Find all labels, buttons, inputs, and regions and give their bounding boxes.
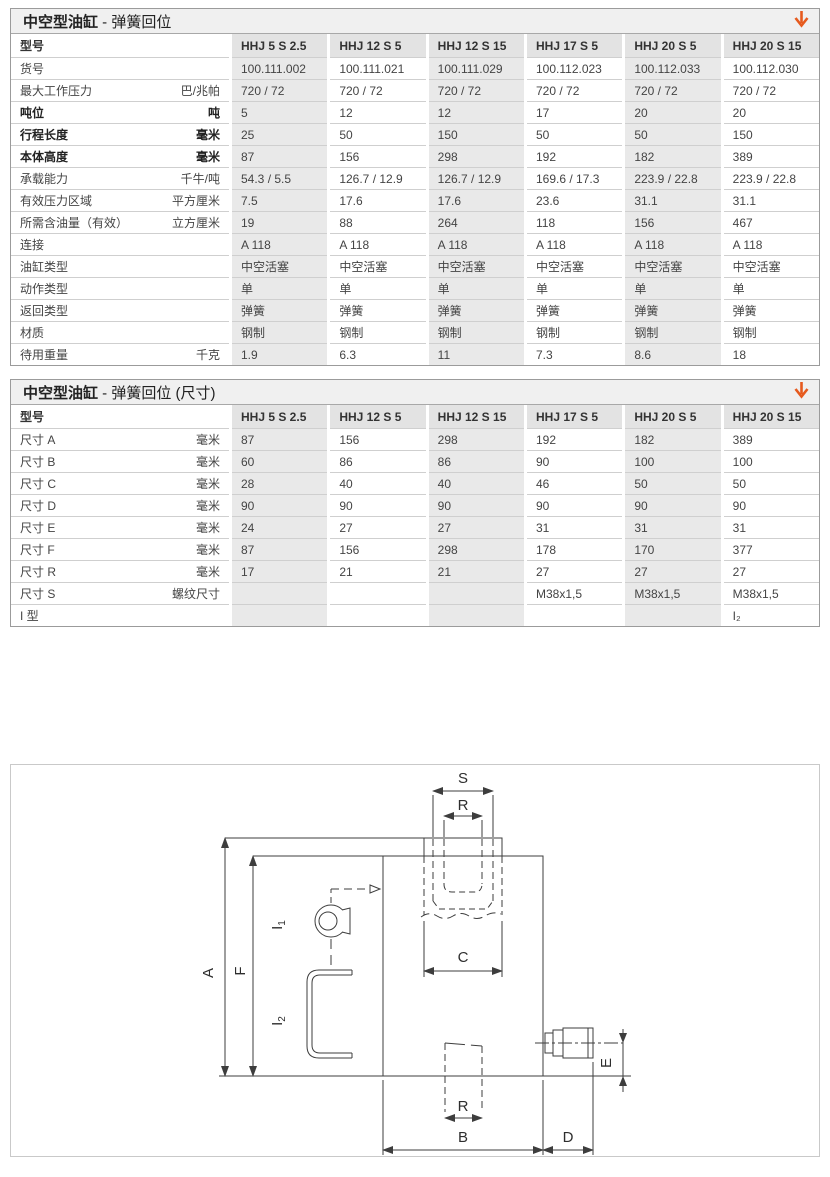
spec-cell: 50 (724, 472, 819, 494)
row-label: 尺寸 E (20, 519, 55, 536)
spec-cell: 7.3 (527, 343, 622, 365)
spec-cell (527, 604, 622, 626)
table2-title-bold: 中空型油缸 (23, 385, 98, 402)
row-label-cell: 行程长度毫米 (11, 123, 229, 145)
catalog-page: 中空型油缸 - 弹簧回位 型号HHJ 5 S 2.5HHJ 12 S 5HHJ … (0, 0, 830, 1177)
dim-label-r-bottom: R (458, 1098, 469, 1115)
spec-cell (330, 582, 425, 604)
row-label: 货号 (20, 60, 44, 77)
table-row: 承载能力千牛/吨54.3 / 5.5126.7 / 12.9126.7 / 12… (11, 167, 819, 189)
row-label-cell: 连接 (11, 233, 229, 255)
table1-header-row: 型号HHJ 5 S 2.5HHJ 12 S 5HHJ 12 S 15HHJ 17… (11, 34, 819, 57)
spec-cell: 90 (724, 494, 819, 516)
row-label: 尺寸 A (20, 431, 55, 448)
column-header: HHJ 12 S 15 (429, 405, 524, 428)
spec-cell: 弹簧 (330, 299, 425, 321)
spec-cell: 27 (527, 560, 622, 582)
download-arrow-icon[interactable] (794, 10, 809, 33)
spec-cell: 中空活塞 (724, 255, 819, 277)
spec-cell (429, 582, 524, 604)
spec-cell: A 118 (429, 233, 524, 255)
row-label-cell: 返回类型 (11, 299, 229, 321)
row-label-cell: 尺寸 D毫米 (11, 494, 229, 516)
row-unit: 毫米 (196, 497, 220, 514)
table1-title-bold: 中空型油缸 (23, 14, 98, 31)
spec-cell: 46 (527, 472, 622, 494)
table-row: 有效压力区域平方厘米7.517.617.623.631.131.1 (11, 189, 819, 211)
spec-cell (330, 604, 425, 626)
column-header: HHJ 12 S 15 (429, 34, 524, 57)
row-label-cell: 最大工作压力巴/兆帕 (11, 79, 229, 101)
table2-title: 中空型油缸 - 弹簧回位 (尺寸) (23, 382, 216, 403)
table-row: 吨位吨51212172020 (11, 101, 819, 123)
spec-cell: 182 (625, 428, 720, 450)
spec-cell: 156 (330, 428, 425, 450)
spec-cell: 31 (625, 516, 720, 538)
spec-cell: 27 (625, 560, 720, 582)
row-label-cell: I 型 (11, 604, 229, 626)
row-label-cell: 承载能力千牛/吨 (11, 167, 229, 189)
row-label-cell: 吨位吨 (11, 101, 229, 123)
spec-cell: 156 (330, 538, 425, 560)
row-unit: 毫米 (196, 148, 220, 165)
table-row: 尺寸 C毫米284040465050 (11, 472, 819, 494)
table-row: 本体高度毫米87156298192182389 (11, 145, 819, 167)
spec-cell: 20 (724, 101, 819, 123)
row-label: I 型 (20, 607, 39, 624)
spec-cell: 40 (429, 472, 524, 494)
spec-cell: 720 / 72 (429, 79, 524, 101)
spec-cell (232, 582, 327, 604)
spec-cell: 钢制 (232, 321, 327, 343)
spec-cell: 弹簧 (429, 299, 524, 321)
table1-body: 货号100.111.002100.111.021100.111.029100.1… (11, 57, 819, 365)
row-label-cell: 尺寸 F毫米 (11, 538, 229, 560)
spec-cell: 87 (232, 145, 327, 167)
row-label: 连接 (20, 236, 44, 253)
spec-cell: 90 (330, 494, 425, 516)
spec-cell: 90 (527, 494, 622, 516)
spec-cell: 25 (232, 123, 327, 145)
handle-icon (307, 970, 352, 1058)
table2-title-bar: 中空型油缸 - 弹簧回位 (尺寸) (11, 380, 819, 405)
spec-cell: 单 (330, 277, 425, 299)
spec-cell: A 118 (527, 233, 622, 255)
spec-cell: 223.9 / 22.8 (625, 167, 720, 189)
spec-cell: 31.1 (625, 189, 720, 211)
spec-cell: I₂ (724, 604, 819, 626)
spec-cell: 126.7 / 12.9 (330, 167, 425, 189)
table-row: 所需含油量（有效）立方厘米1988264118156467 (11, 211, 819, 233)
row-unit: 巴/兆帕 (181, 82, 220, 99)
spec-cell: 21 (330, 560, 425, 582)
table-row: 尺寸 B毫米60868690100100 (11, 450, 819, 472)
spec-cell: 中空活塞 (232, 255, 327, 277)
table2-title-rest: - 弹簧回位 (尺寸) (98, 385, 216, 402)
table2-header-row: 型号HHJ 5 S 2.5HHJ 12 S 5HHJ 12 S 15HHJ 17… (11, 405, 819, 428)
spec-cell: 18 (724, 343, 819, 365)
spec-cell (429, 604, 524, 626)
spec-cell: 17 (527, 101, 622, 123)
spec-cell: 178 (527, 538, 622, 560)
spec-cell: 377 (724, 538, 819, 560)
spec-cell: 720 / 72 (724, 79, 819, 101)
spec-cell: 182 (625, 145, 720, 167)
spec-cell: 100.111.021 (330, 57, 425, 79)
spec-cell: 31 (724, 516, 819, 538)
row-label: 材质 (20, 324, 44, 341)
table-row: 最大工作压力巴/兆帕720 / 72720 / 72720 / 72720 / … (11, 79, 819, 101)
row-label: 尺寸 S (20, 585, 55, 602)
spec-cell: 100.111.029 (429, 57, 524, 79)
row-label-cell: 有效压力区域平方厘米 (11, 189, 229, 211)
spec-cell: 单 (527, 277, 622, 299)
spec-cell: 467 (724, 211, 819, 233)
table-row: 待用重量千克1.96.3117.38.618 (11, 343, 819, 365)
dim-label-r-top: R (458, 797, 469, 814)
spec-cell: A 118 (724, 233, 819, 255)
spec-cell: 12 (330, 101, 425, 123)
column-header: HHJ 5 S 2.5 (232, 405, 327, 428)
row-label-cell: 货号 (11, 57, 229, 79)
spec-cell: 223.9 / 22.8 (724, 167, 819, 189)
row-unit: 平方厘米 (172, 192, 220, 209)
dim-label-f: F (232, 966, 249, 975)
row-label-cell: 尺寸 A毫米 (11, 428, 229, 450)
spec-cell: M38x1,5 (625, 582, 720, 604)
row-unit: 毫米 (196, 431, 220, 448)
spec-cell: 钢制 (625, 321, 720, 343)
row-unit: 毫米 (196, 563, 220, 580)
spec-cell: 389 (724, 428, 819, 450)
table-row: 油缸类型中空活塞中空活塞中空活塞中空活塞中空活塞中空活塞 (11, 255, 819, 277)
column-header: HHJ 20 S 5 (625, 34, 720, 57)
spec-cell: 弹簧 (625, 299, 720, 321)
spec-cell: 192 (527, 428, 622, 450)
spec-cell: 156 (625, 211, 720, 233)
table1-title-bar: 中空型油缸 - 弹簧回位 (11, 9, 819, 34)
row-label: 待用重量 (20, 346, 68, 363)
spec-cell: 87 (232, 428, 327, 450)
spec-cell: 27 (429, 516, 524, 538)
table2-body: 尺寸 A毫米87156298192182389尺寸 B毫米60868690100… (11, 428, 819, 626)
dim-label-s: S (458, 770, 468, 787)
column-header: HHJ 17 S 5 (527, 405, 622, 428)
table1-title-rest: - 弹簧回位 (98, 14, 171, 31)
spec-cell: 单 (724, 277, 819, 299)
row-label: 返回类型 (20, 302, 68, 319)
row-unit: 毫米 (196, 475, 220, 492)
row-unit: 毫米 (196, 453, 220, 470)
row-unit: 千牛/吨 (181, 170, 220, 187)
table-row: I 型I₂ (11, 604, 819, 626)
spec-cell: 28 (232, 472, 327, 494)
spec-cell (625, 604, 720, 626)
dim-label-e: E (598, 1058, 615, 1068)
row-label: 油缸类型 (20, 258, 68, 275)
spec-cell: 中空活塞 (625, 255, 720, 277)
row-label: 最大工作压力 (20, 82, 92, 99)
spec-cell: 8.6 (625, 343, 720, 365)
spec-cell: 90 (527, 450, 622, 472)
spec-cell: 90 (232, 494, 327, 516)
spec-cell: 100.111.002 (232, 57, 327, 79)
cylinder-body (383, 856, 543, 1076)
spec-cell: 192 (527, 145, 622, 167)
row-label: 尺寸 C (20, 475, 56, 492)
spec-cell: 169.6 / 17.3 (527, 167, 622, 189)
spec-cell: 中空活塞 (429, 255, 524, 277)
spec-cell: 19 (232, 211, 327, 233)
spec-cell: 90 (429, 494, 524, 516)
table-row: 尺寸 R毫米172121272727 (11, 560, 819, 582)
table-row: 尺寸 E毫米242727313131 (11, 516, 819, 538)
row-unit: 螺纹尺寸 (172, 585, 220, 602)
spec-cell: 720 / 72 (232, 79, 327, 101)
spec-cell: 31 (527, 516, 622, 538)
spec-cell: 5 (232, 101, 327, 123)
row-label: 吨位 (20, 104, 44, 121)
download-arrow-icon[interactable] (794, 381, 809, 404)
table-row: 尺寸 A毫米87156298192182389 (11, 428, 819, 450)
row-label: 行程长度 (20, 126, 68, 143)
spec-cell: 100.112.030 (724, 57, 819, 79)
column-header: HHJ 20 S 5 (625, 405, 720, 428)
table-row: 尺寸 S螺纹尺寸M38x1,5M38x1,5M38x1,5 (11, 582, 819, 604)
dim-label-b: B (458, 1129, 468, 1146)
row-label: 尺寸 R (20, 563, 56, 580)
spec-cell: 12 (429, 101, 524, 123)
row-label-cell: 尺寸 B毫米 (11, 450, 229, 472)
spec-cell: A 118 (625, 233, 720, 255)
row-label-cell: 尺寸 E毫米 (11, 516, 229, 538)
section-gap (10, 366, 820, 379)
spec-cell: 中空活塞 (527, 255, 622, 277)
row-unit: 毫米 (196, 126, 220, 143)
spec-table-section: 中空型油缸 - 弹簧回位 型号HHJ 5 S 2.5HHJ 12 S 5HHJ … (10, 8, 820, 366)
spec-cell: 50 (625, 472, 720, 494)
spec-cell: A 118 (330, 233, 425, 255)
spec-cell: 中空活塞 (330, 255, 425, 277)
spec-cell: 90 (625, 494, 720, 516)
row-label: 动作类型 (20, 280, 68, 297)
spec-cell: 50 (330, 123, 425, 145)
row-label: 有效压力区域 (20, 192, 92, 209)
row-label: 尺寸 D (20, 497, 56, 514)
spec-cell: 40 (330, 472, 425, 494)
spec-cell: 钢制 (527, 321, 622, 343)
table-row: 返回类型弹簧弹簧弹簧弹簧弹簧弹簧 (11, 299, 819, 321)
spec-cell: 6.3 (330, 343, 425, 365)
dim-label-i1: I1 (269, 920, 288, 930)
spec-cell: 60 (232, 450, 327, 472)
column-header: HHJ 12 S 5 (330, 405, 425, 428)
column-header: HHJ 20 S 15 (724, 34, 819, 57)
column-header: HHJ 5 S 2.5 (232, 34, 327, 57)
spec-cell: 100 (724, 450, 819, 472)
row-label: 所需含油量（有效） (20, 214, 128, 231)
dimension-diagram: S R C R B D A F E I1 I2 (10, 764, 820, 1157)
row-unit: 千克 (196, 346, 220, 363)
dim-label-d: D (563, 1129, 574, 1146)
dim-label-a: A (200, 968, 217, 978)
spec-cell: 24 (232, 516, 327, 538)
spec-cell: 21 (429, 560, 524, 582)
row-label-cell: 材质 (11, 321, 229, 343)
row-label-cell: 动作类型 (11, 277, 229, 299)
spec-cell: 150 (429, 123, 524, 145)
spec-cell: 86 (429, 450, 524, 472)
spec-cell: 20 (625, 101, 720, 123)
spec-cell: 87 (232, 538, 327, 560)
table-row: 尺寸 D毫米909090909090 (11, 494, 819, 516)
table-row: 尺寸 F毫米87156298178170377 (11, 538, 819, 560)
spec-cell: M38x1,5 (527, 582, 622, 604)
row-unit: 吨 (208, 104, 220, 121)
spec-cell: 17.6 (330, 189, 425, 211)
spec-cell: 钢制 (330, 321, 425, 343)
spec-cell: 118 (527, 211, 622, 233)
spec-cell: 298 (429, 428, 524, 450)
row-label-cell: 待用重量千克 (11, 343, 229, 365)
spec-cell: 86 (330, 450, 425, 472)
dim-label-i2: I2 (269, 1016, 288, 1026)
spec-cell: 126.7 / 12.9 (429, 167, 524, 189)
row-label: 本体高度 (20, 148, 68, 165)
spec-cell: 钢制 (724, 321, 819, 343)
spec-cell: 31.1 (724, 189, 819, 211)
row-unit: 立方厘米 (172, 214, 220, 231)
row-label-cell: 本体高度毫米 (11, 145, 229, 167)
spec-cell: 720 / 72 (330, 79, 425, 101)
spec-cell: M38x1,5 (724, 582, 819, 604)
spec-cell: 170 (625, 538, 720, 560)
spec-cell: 27 (330, 516, 425, 538)
spec-cell: 50 (527, 123, 622, 145)
spec-cell: 88 (330, 211, 425, 233)
spec-cell (232, 604, 327, 626)
spec-cell: 单 (625, 277, 720, 299)
spec-cell: 27 (724, 560, 819, 582)
table1-title: 中空型油缸 - 弹簧回位 (23, 11, 171, 32)
row-label: 尺寸 F (20, 541, 55, 558)
dimension-table-section: 中空型油缸 - 弹簧回位 (尺寸) 型号HHJ 5 S 2.5HHJ 12 S … (10, 379, 820, 627)
coupler-icon (535, 1028, 623, 1058)
table-row: 连接A 118A 118A 118A 118A 118A 118 (11, 233, 819, 255)
spec-cell: A 118 (232, 233, 327, 255)
column-header: HHJ 12 S 5 (330, 34, 425, 57)
spec-cell: 弹簧 (527, 299, 622, 321)
column-header-model: 型号 (11, 405, 229, 428)
row-label: 承载能力 (20, 170, 68, 187)
spec-cell: 720 / 72 (625, 79, 720, 101)
spec-cell: 17 (232, 560, 327, 582)
spec-cell: 单 (429, 277, 524, 299)
spec-cell: 150 (724, 123, 819, 145)
spec-cell: 23.6 (527, 189, 622, 211)
spec-cell: 100 (625, 450, 720, 472)
spec-cell: 100.112.033 (625, 57, 720, 79)
spec-cell: 11 (429, 343, 524, 365)
spec-cell: 钢制 (429, 321, 524, 343)
spec-cell: 50 (625, 123, 720, 145)
spec-cell: 100.112.023 (527, 57, 622, 79)
row-unit: 毫米 (196, 519, 220, 536)
spec-cell: 弹簧 (724, 299, 819, 321)
row-unit: 毫米 (196, 541, 220, 558)
row-label: 尺寸 B (20, 453, 55, 470)
column-header: HHJ 20 S 15 (724, 405, 819, 428)
row-label-cell: 油缸类型 (11, 255, 229, 277)
spec-cell: 弹簧 (232, 299, 327, 321)
spec-cell: 1.9 (232, 343, 327, 365)
row-label-cell: 尺寸 R毫米 (11, 560, 229, 582)
table-row: 动作类型单单单单单单 (11, 277, 819, 299)
spec-cell: 264 (429, 211, 524, 233)
table-row: 行程长度毫米25501505050150 (11, 123, 819, 145)
row-label-cell: 所需含油量（有效）立方厘米 (11, 211, 229, 233)
dim-label-c: C (458, 949, 469, 966)
spec-cell: 单 (232, 277, 327, 299)
table-row: 货号100.111.002100.111.021100.111.029100.1… (11, 57, 819, 79)
row-label-cell: 尺寸 S螺纹尺寸 (11, 582, 229, 604)
column-header-model: 型号 (11, 34, 229, 57)
column-header: HHJ 17 S 5 (527, 34, 622, 57)
spec-cell: 298 (429, 538, 524, 560)
spec-cell: 17.6 (429, 189, 524, 211)
spec-cell: 7.5 (232, 189, 327, 211)
cylinder-drawing: S R C R B D A F E I1 I2 (11, 765, 819, 1156)
spec-cell: 389 (724, 145, 819, 167)
spec-cell: 156 (330, 145, 425, 167)
table-row: 材质钢制钢制钢制钢制钢制钢制 (11, 321, 819, 343)
spec-cell: 54.3 / 5.5 (232, 167, 327, 189)
spec-cell: 720 / 72 (527, 79, 622, 101)
row-label-cell: 尺寸 C毫米 (11, 472, 229, 494)
spec-cell: 298 (429, 145, 524, 167)
